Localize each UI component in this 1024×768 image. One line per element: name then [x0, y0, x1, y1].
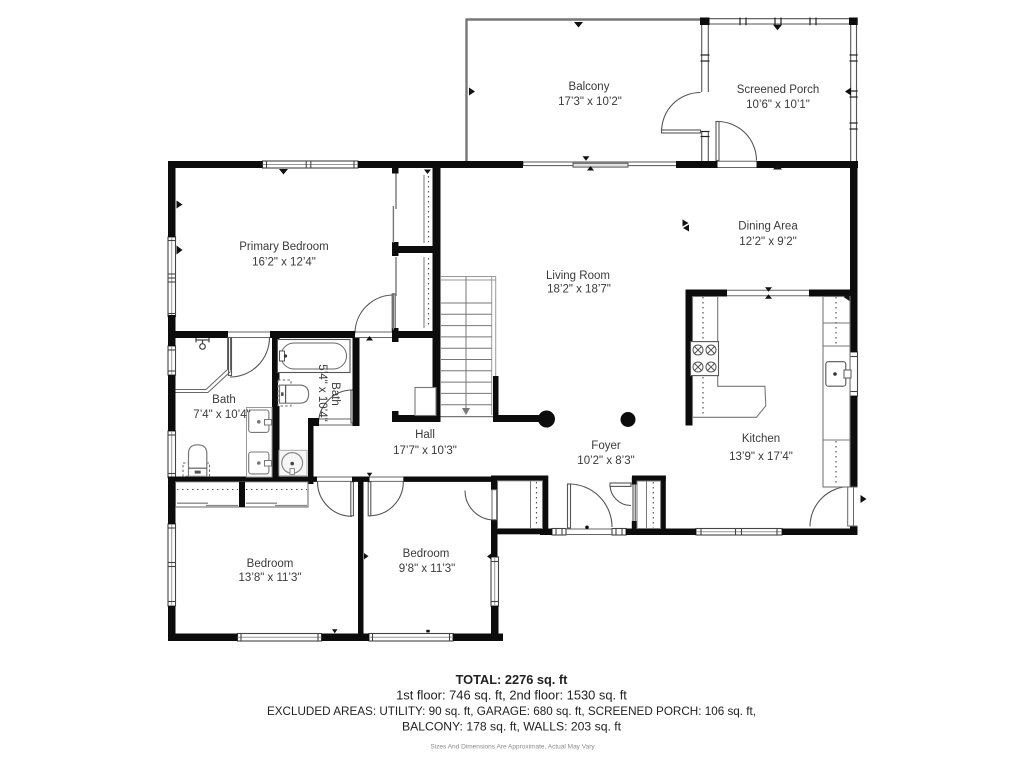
svg-text:Bedroom: Bedroom: [403, 548, 450, 560]
svg-text:13’8" x 11’3": 13’8" x 11’3": [239, 572, 302, 584]
svg-text:10’2" x 8’3": 10’2" x 8’3": [577, 455, 634, 467]
svg-text:Hall: Hall: [415, 429, 435, 441]
svg-text:5’4" x 10’4": 5’4" x 10’4": [316, 364, 328, 421]
svg-text:TOTAL: 2276 sq. ft: TOTAL: 2276 sq. ft: [456, 672, 569, 687]
svg-text:17’7" x 10’3": 17’7" x 10’3": [393, 445, 457, 457]
svg-text:Sizes And Dimensions Are Appro: Sizes And Dimensions Are Approximate, Ac…: [430, 744, 595, 751]
svg-text:Screened Porch: Screened Porch: [737, 84, 819, 96]
svg-text:13’9" x 17’4": 13’9" x 17’4": [729, 451, 793, 463]
svg-text:Bedroom: Bedroom: [247, 558, 294, 570]
svg-text:EXCLUDED AREAS: UTILITY: 90 sq: EXCLUDED AREAS: UTILITY: 90 sq. ft, GARA…: [267, 705, 756, 718]
svg-text:16’2" x 12’4": 16’2" x 12’4": [252, 257, 316, 269]
svg-text:Dining Area: Dining Area: [738, 221, 798, 233]
svg-text:17’3" x 10’2": 17’3" x 10’2": [558, 96, 622, 108]
svg-text:1st floor: 746 sq. ft, 2nd flo: 1st floor: 746 sq. ft, 2nd floor: 1530 s…: [396, 688, 627, 703]
svg-text:Living Room: Living Room: [546, 270, 610, 282]
svg-text:7’4" x 10’4": 7’4" x 10’4": [193, 409, 250, 421]
svg-text:Kitchen: Kitchen: [742, 433, 780, 445]
svg-text:Bath: Bath: [329, 382, 341, 406]
svg-text:18’2" x 18’7": 18’2" x 18’7": [547, 284, 611, 296]
svg-text:Balcony: Balcony: [569, 81, 610, 93]
svg-text:9’8" x 11’3": 9’8" x 11’3": [399, 563, 456, 575]
svg-text:Foyer: Foyer: [591, 440, 621, 452]
svg-text:Primary Bedroom: Primary Bedroom: [239, 241, 328, 253]
svg-text:10’6" x 10’1": 10’6" x 10’1": [746, 99, 810, 111]
svg-text:12’2" x 9’2": 12’2" x 9’2": [739, 236, 796, 248]
svg-text:Bath: Bath: [212, 394, 236, 406]
svg-text:BALCONY: 178 sq. ft, WALLS: 20: BALCONY: 178 sq. ft, WALLS: 203 sq. ft: [402, 720, 622, 734]
